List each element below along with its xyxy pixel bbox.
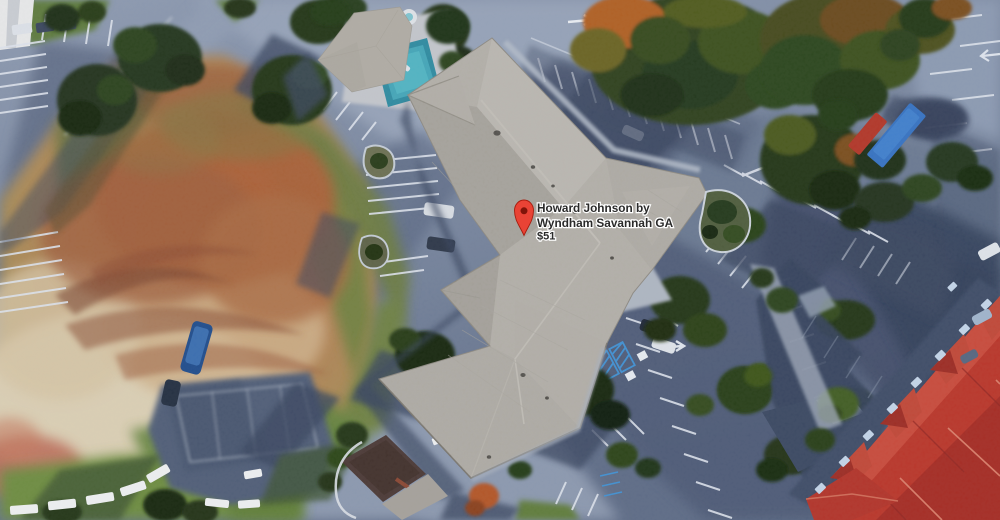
svg-text:Wyndham Savannah GA: Wyndham Savannah GA [537,216,674,230]
svg-text:Howard Johnson by: Howard Johnson by [537,201,650,215]
svg-text:$51: $51 [537,231,555,243]
